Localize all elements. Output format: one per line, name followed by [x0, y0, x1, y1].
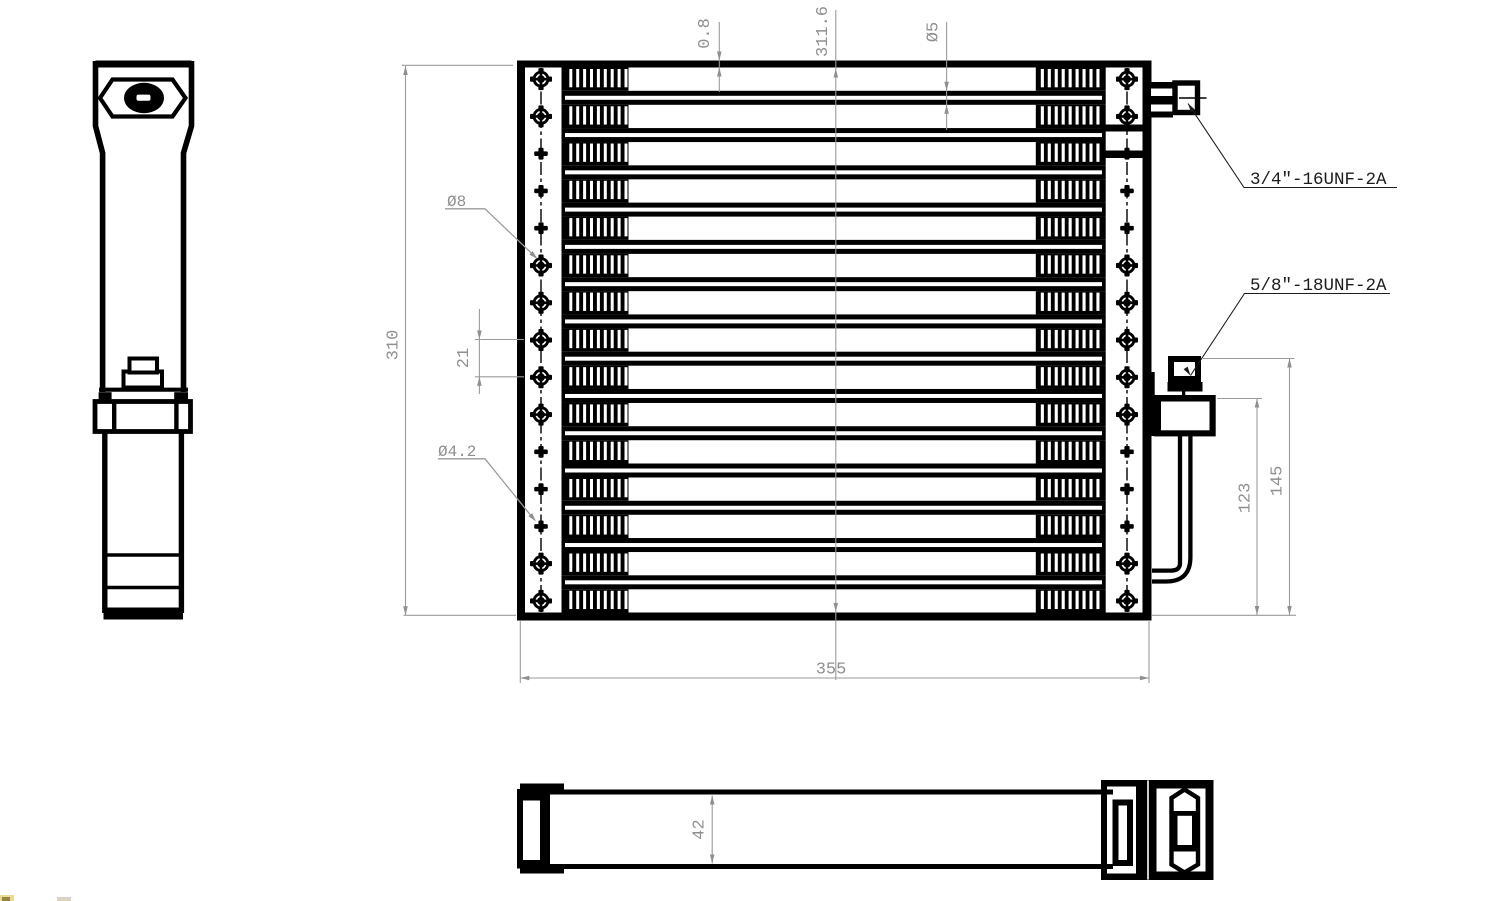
svg-text:21: 21	[455, 348, 474, 368]
svg-text:0.8: 0.8	[696, 18, 715, 49]
svg-text:123: 123	[1237, 483, 1256, 514]
svg-text:145: 145	[1269, 466, 1288, 497]
svg-text:311.6: 311.6	[814, 6, 833, 57]
svg-text:355: 355	[816, 661, 847, 680]
svg-text:Ø5: Ø5	[925, 22, 944, 42]
svg-text:42: 42	[691, 819, 710, 839]
svg-text:310: 310	[385, 330, 404, 361]
